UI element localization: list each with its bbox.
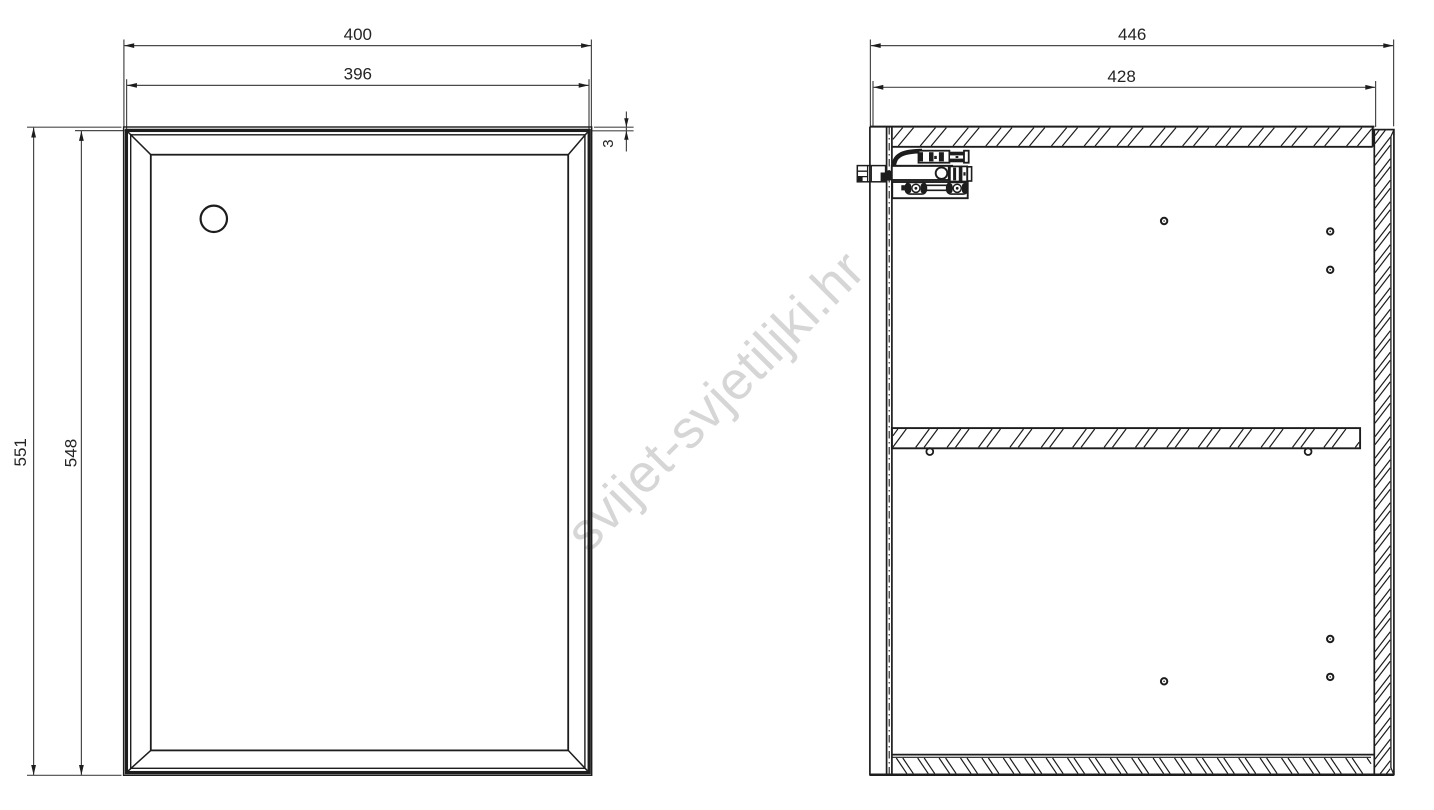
svg-text:3: 3 <box>600 139 617 147</box>
svg-text:428: 428 <box>1107 67 1135 86</box>
svg-text:551: 551 <box>11 438 30 466</box>
svg-text:548: 548 <box>61 439 80 467</box>
svg-text:446: 446 <box>1118 25 1146 44</box>
svg-text:400: 400 <box>344 25 372 44</box>
svg-text:396: 396 <box>344 64 372 83</box>
